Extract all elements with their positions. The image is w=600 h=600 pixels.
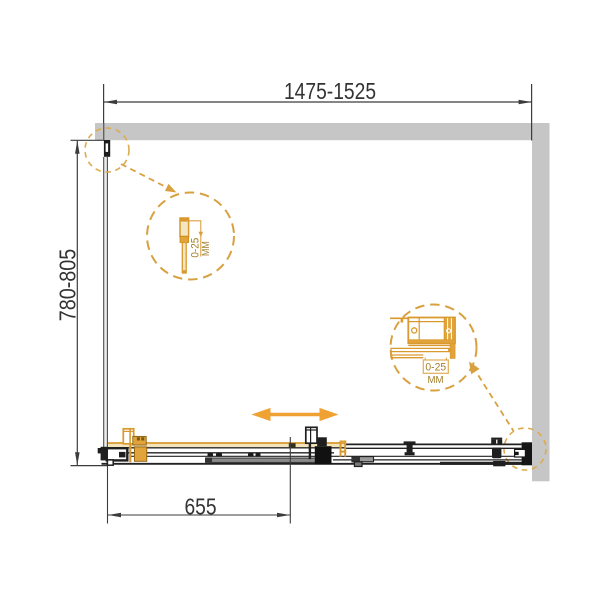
svg-text:780-805: 780-805 — [54, 249, 81, 321]
svg-text:1475-1525: 1475-1525 — [284, 78, 376, 104]
svg-text:ММ: ММ — [201, 241, 213, 256]
svg-text:655: 655 — [184, 494, 216, 520]
svg-text:0-25: 0-25 — [425, 361, 446, 373]
svg-text:ММ: ММ — [427, 375, 443, 386]
